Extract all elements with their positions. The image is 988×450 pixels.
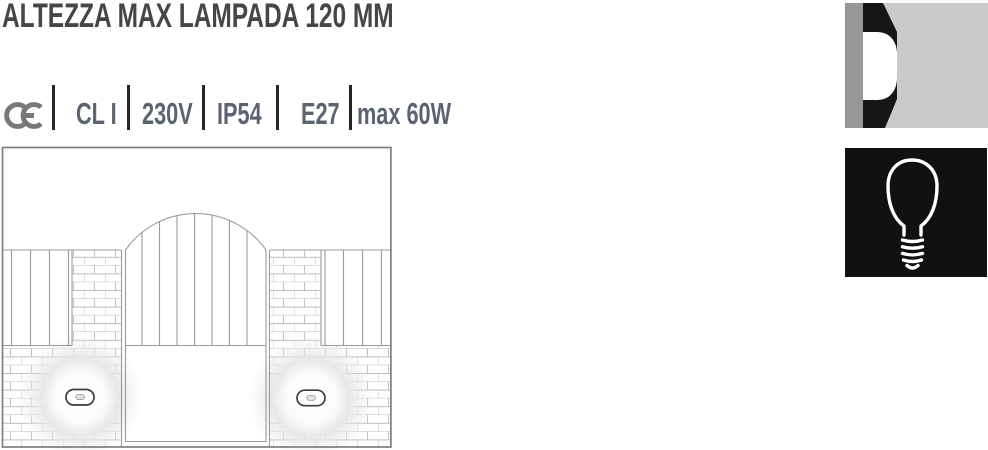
recessed-wall-light-beam-icon [845,3,988,128]
spec-separator [202,85,205,130]
spec-separator [349,85,352,130]
spec-ip: IP54 [217,97,262,131]
spec-separator [127,85,130,130]
spec-socket: E27 [301,97,340,131]
spec-separator [52,85,55,130]
spec-class: CL I [76,97,117,131]
ground-light-left [66,390,94,406]
spec-separator [276,85,279,130]
e27-light-bulb-icon [845,148,987,277]
installation-drawing [0,145,394,450]
spec-wattage: max 60W [357,97,451,131]
page-title: ALTEZZA MAX LAMPADA 120 MM [2,0,394,32]
datasheet-page: ALTEZZA MAX LAMPADA 120 MM CL I 230V IP5… [0,0,988,450]
spec-voltage: 230V [142,97,193,131]
ground-light-right [297,390,325,406]
ce-mark-icon [3,100,45,131]
